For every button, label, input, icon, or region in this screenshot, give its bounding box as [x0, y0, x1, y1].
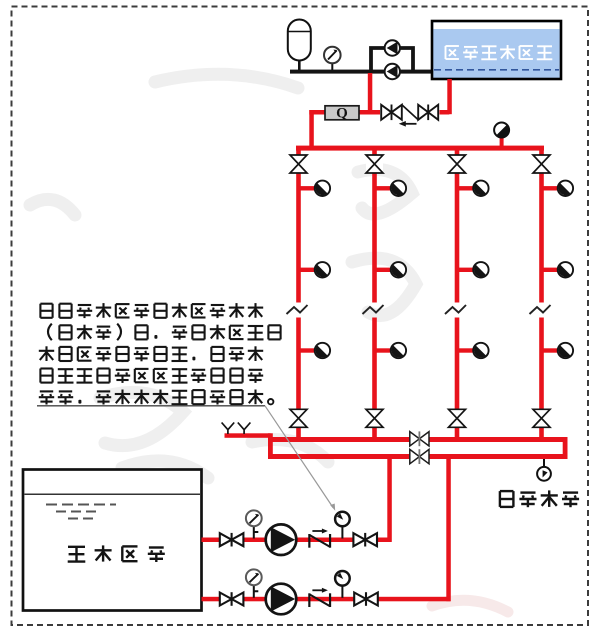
svg-text:Q: Q — [336, 106, 348, 122]
